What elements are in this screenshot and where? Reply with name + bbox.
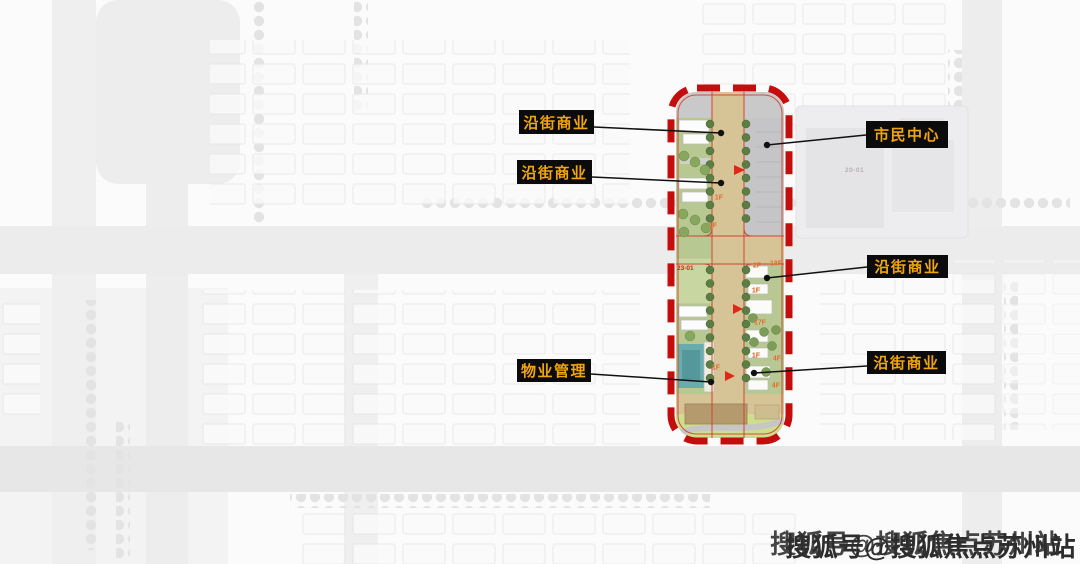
callout-shimin-zhongxin: 市民中心 [866,121,948,148]
tree-icon [701,223,711,233]
pool-inner [682,350,700,380]
tree-icon [679,151,689,161]
tree-icon [706,120,714,128]
callout-yanjie-shangye-1: 沿街商业 [519,110,594,134]
tree-icon [742,147,750,155]
tree-icon [750,338,759,347]
tree-icon [706,280,714,288]
background-faded-plan [0,0,1080,564]
tree-icon [742,215,750,223]
tree-icon [706,215,714,223]
tree-icon [679,227,689,237]
tree-icon [742,134,750,142]
tree-icon [742,174,750,182]
central-road [712,92,744,438]
tree-icon [760,328,769,337]
south-plaza-building [685,404,747,424]
tree-icon [706,174,714,182]
tree-icon [742,361,750,369]
tree-icon [678,209,688,219]
tree-icon [690,157,700,167]
tree-icon [700,165,710,175]
tree-icon [706,188,714,196]
tree-icon [742,161,750,169]
tree-icon [706,201,714,209]
marker-dot-yanjie-shangye-2 [718,180,724,186]
watermark: 搜狐号@搜狐焦点苏州站 搜狐号@搜狐焦点苏州站 [756,524,1076,560]
tree-icon [706,266,714,274]
tree-icon [706,320,714,328]
tree-icon [749,314,758,323]
tree-icon [742,188,750,196]
tree-icon [742,307,750,315]
tree-icon [742,320,750,328]
south-plaza-block [755,405,779,419]
marker-dot-shimin-zhongxin [764,142,770,148]
tree-icon [685,331,695,341]
marker-dot-yanjie-shangye-1 [718,130,724,136]
tree-icon [706,334,714,342]
tree-icon [706,307,714,315]
callout-yanjie-shangye-2: 沿街商业 [517,160,592,184]
highlight-strip [671,88,789,441]
tree-icon [742,293,750,301]
tree-icon [706,347,714,355]
tree-icon [742,280,750,288]
watermark-text: 搜狐号@搜狐焦点苏州站 [785,527,1076,564]
master-plan-page: 23-01 20-01 1F1F1F2F18F1F17F1F4F4F 沿街商业沿… [0,0,1080,564]
callout-wuye-guanli: 物业管理 [517,359,591,382]
tree-icon [742,334,750,342]
tree-icon [690,215,700,225]
tree-icon [706,361,714,369]
callout-yanjie-shangye-3: 沿街商业 [867,255,948,278]
tree-icon [742,266,750,274]
tree-icon [706,147,714,155]
tree-icon [742,120,750,128]
tree-icon [742,374,750,382]
tree-icon [742,201,750,209]
tree-icon [768,342,777,351]
tree-icon [706,293,714,301]
marker-dot-wuye-guanli [708,379,714,385]
marker-dot-yanjie-shangye-3 [764,275,770,281]
tree-icon [706,134,714,142]
tree-icon [772,326,781,335]
tree-icon [742,347,750,355]
marker-dot-yanjie-shangye-4 [751,370,757,376]
site-plan-canvas [0,0,1080,564]
callout-yanjie-shangye-4: 沿街商业 [867,351,946,374]
